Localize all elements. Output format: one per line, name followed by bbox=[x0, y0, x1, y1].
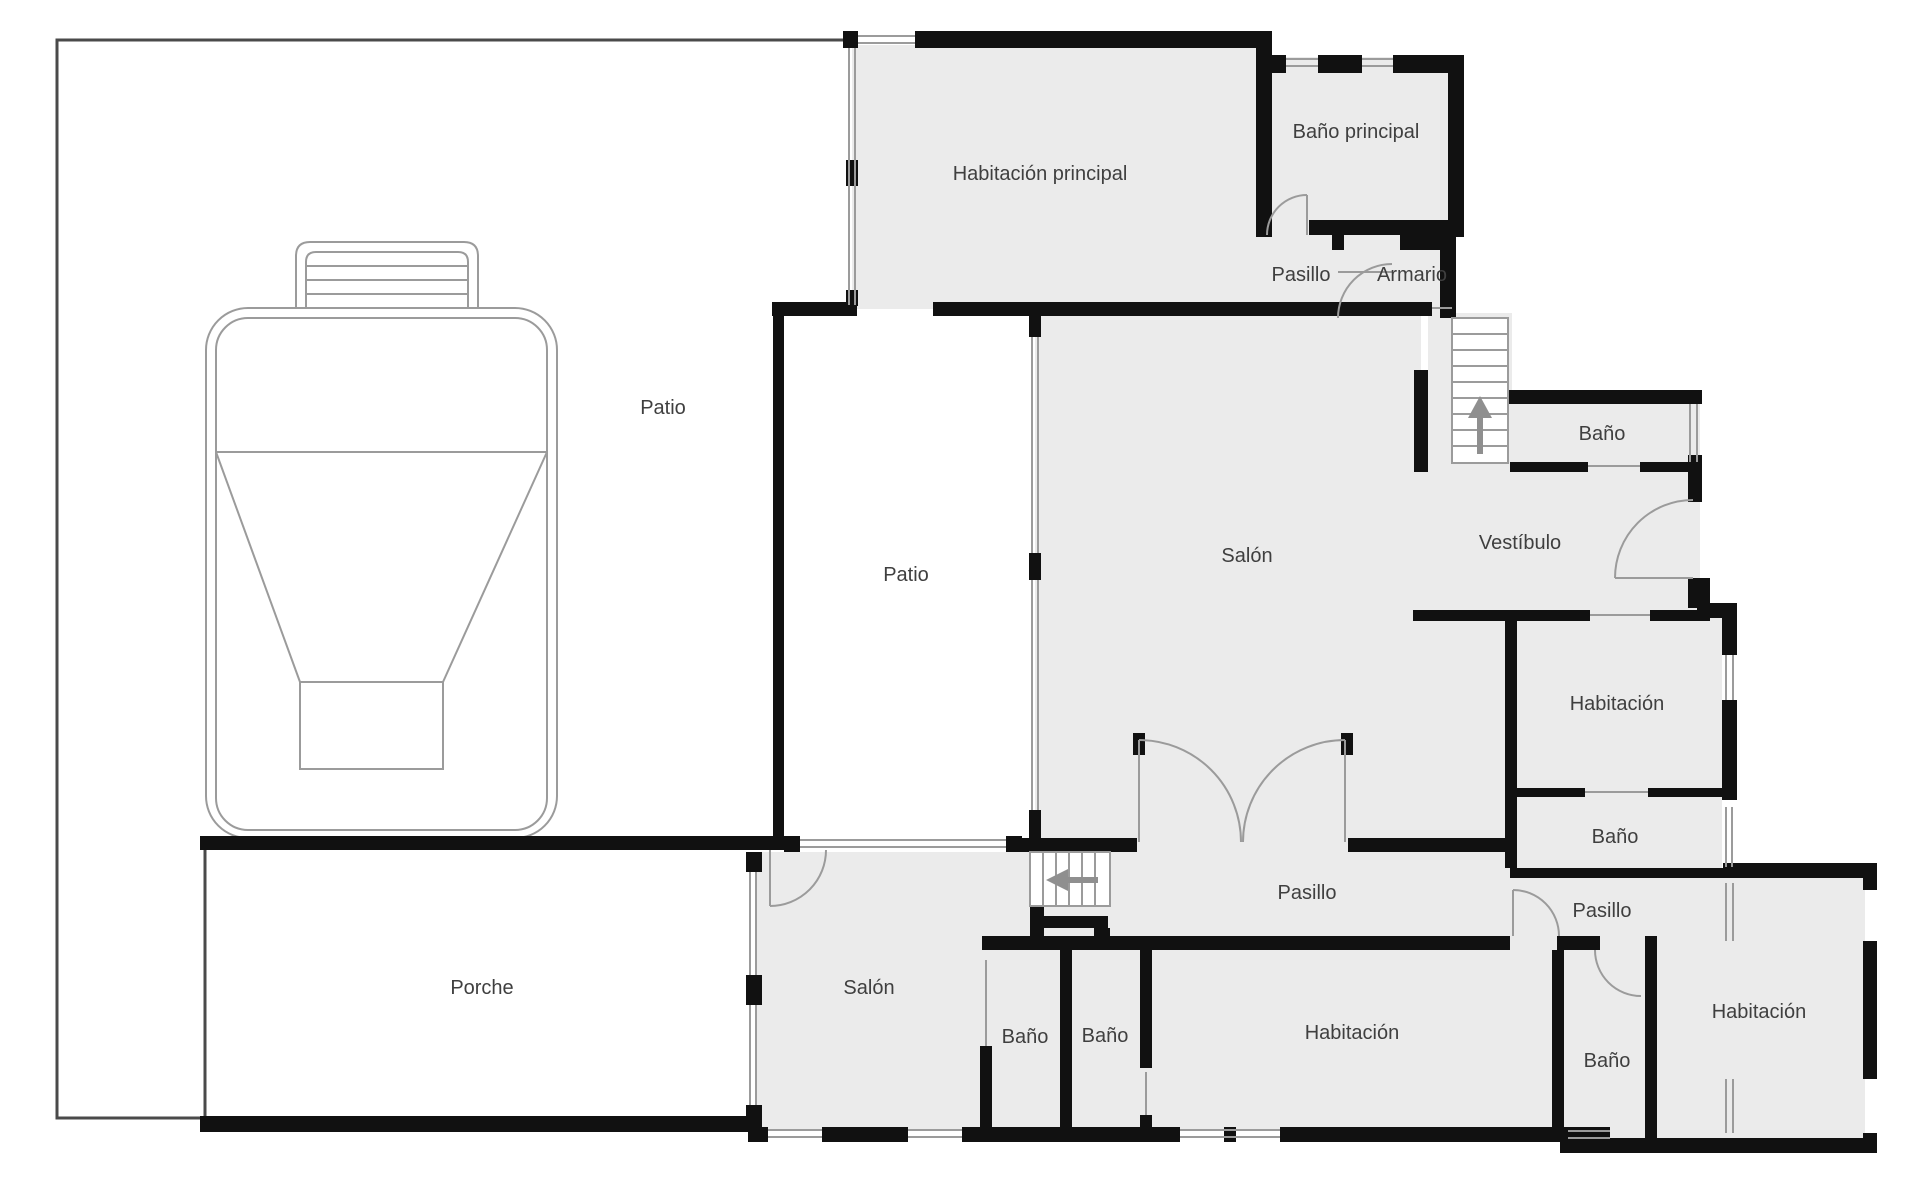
floor-plan: Habitación principalBaño principalPasill… bbox=[0, 0, 1920, 1182]
room-label-habitacion-principal: Habitación principal bbox=[953, 163, 1128, 185]
room-label-vestibulo: Vestíbulo bbox=[1479, 532, 1561, 554]
room-label-salon-bottom: Salón bbox=[843, 977, 894, 999]
room-label-bano-bottom-2: Baño bbox=[1082, 1025, 1129, 1047]
room-label-bano-top-right: Baño bbox=[1579, 423, 1626, 445]
room-label-bano-right: Baño bbox=[1592, 826, 1639, 848]
room-label-bano-bottom-1: Baño bbox=[1002, 1026, 1049, 1048]
stairs-upper bbox=[1452, 318, 1508, 463]
room-label-bano-principal: Baño principal bbox=[1293, 121, 1420, 143]
room-label-bano-bottom-right: Baño bbox=[1584, 1050, 1631, 1072]
floor-plan-page: Habitación principalBaño principalPasill… bbox=[0, 0, 1920, 1182]
room-label-habitacion-right: Habitación bbox=[1570, 693, 1665, 715]
room-label-habitacion-bottom: Habitación bbox=[1305, 1022, 1400, 1044]
room-label-pasillo-center: Pasillo bbox=[1278, 882, 1337, 904]
room-label-patio-center: Patio bbox=[883, 564, 929, 586]
stairs-lower bbox=[1030, 852, 1110, 906]
room-label-porche: Porche bbox=[450, 977, 513, 999]
room-label-pasillo-top: Pasillo bbox=[1272, 264, 1331, 286]
room-label-pasillo-right: Pasillo bbox=[1573, 900, 1632, 922]
room-label-salon-center: Salón bbox=[1221, 545, 1272, 567]
room-label-patio-left: Patio bbox=[640, 397, 686, 419]
room-label-habitacion-bottom-right: Habitación bbox=[1712, 1001, 1807, 1023]
room-label-armario: Armario bbox=[1377, 264, 1447, 286]
